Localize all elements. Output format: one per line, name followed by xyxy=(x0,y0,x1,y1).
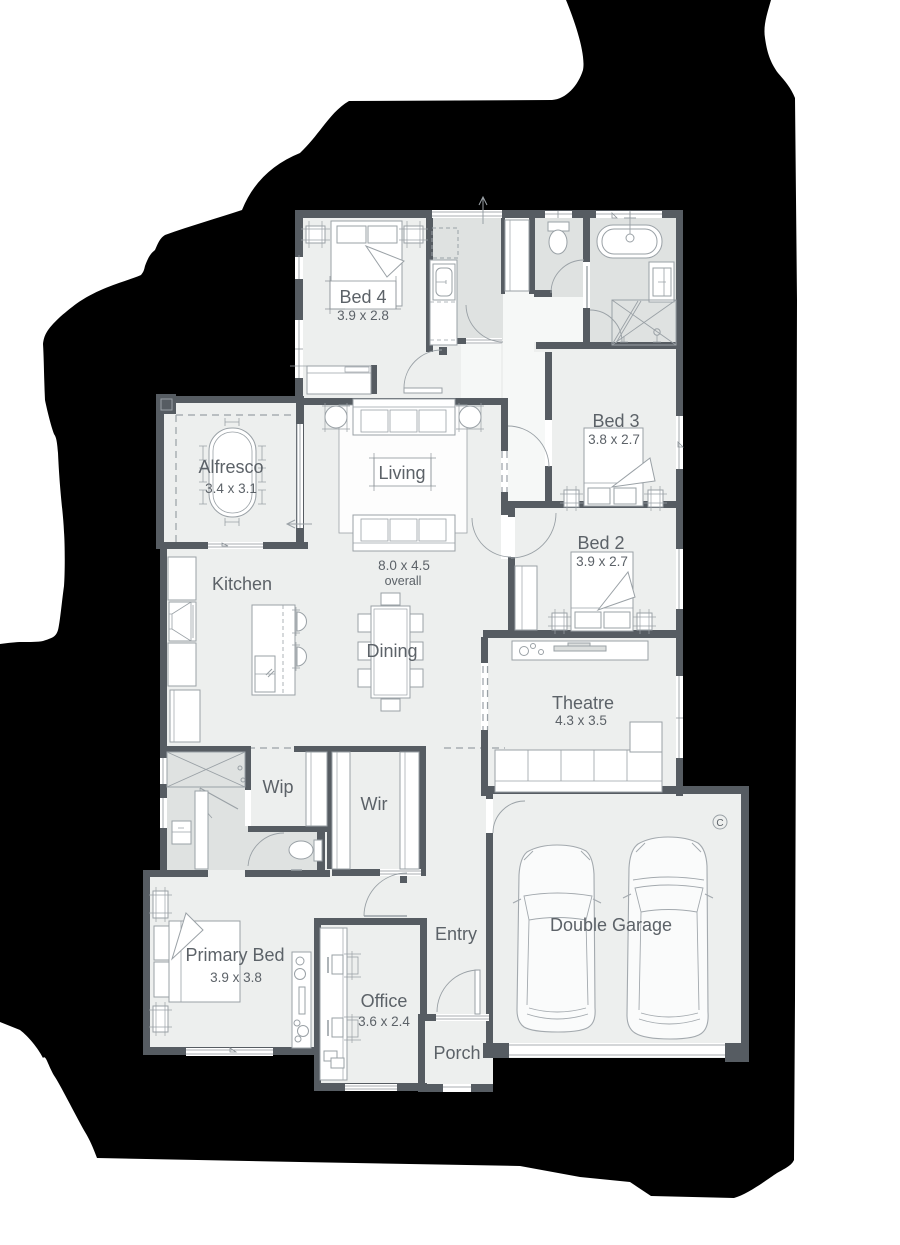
svg-text:3.8 x 2.7: 3.8 x 2.7 xyxy=(588,432,640,447)
svg-text:Dining: Dining xyxy=(366,641,417,661)
svg-text:3.9 x 2.8: 3.9 x 2.8 xyxy=(337,308,389,323)
svg-text:Bed 3: Bed 3 xyxy=(592,411,639,431)
svg-text:Bed 2: Bed 2 xyxy=(577,533,624,553)
svg-text:3.9 x 3.8: 3.9 x 3.8 xyxy=(210,970,262,985)
svg-text:Kitchen: Kitchen xyxy=(212,574,272,594)
svg-text:3.9 x 2.7: 3.9 x 2.7 xyxy=(576,554,628,569)
svg-text:Wip: Wip xyxy=(263,777,294,797)
svg-text:Double Garage: Double Garage xyxy=(550,915,672,935)
svg-text:Porch: Porch xyxy=(433,1043,480,1063)
svg-text:8.0 x 4.5: 8.0 x 4.5 xyxy=(378,558,430,573)
svg-text:Living: Living xyxy=(378,463,425,483)
svg-text:3.6 x 2.4: 3.6 x 2.4 xyxy=(358,1014,410,1029)
svg-text:Alfresco: Alfresco xyxy=(198,457,263,477)
svg-text:Entry: Entry xyxy=(435,924,477,944)
svg-text:3.4 x 3.1: 3.4 x 3.1 xyxy=(205,481,257,496)
svg-text:Wir: Wir xyxy=(361,794,388,814)
svg-text:C: C xyxy=(716,818,723,829)
svg-text:Bed 4: Bed 4 xyxy=(339,287,386,307)
svg-text:Primary Bed: Primary Bed xyxy=(185,945,284,965)
svg-text:4.3 x 3.5: 4.3 x 3.5 xyxy=(555,713,607,728)
svg-text:Office: Office xyxy=(361,991,408,1011)
svg-text:Theatre: Theatre xyxy=(552,693,614,713)
svg-text:overall: overall xyxy=(385,574,422,588)
